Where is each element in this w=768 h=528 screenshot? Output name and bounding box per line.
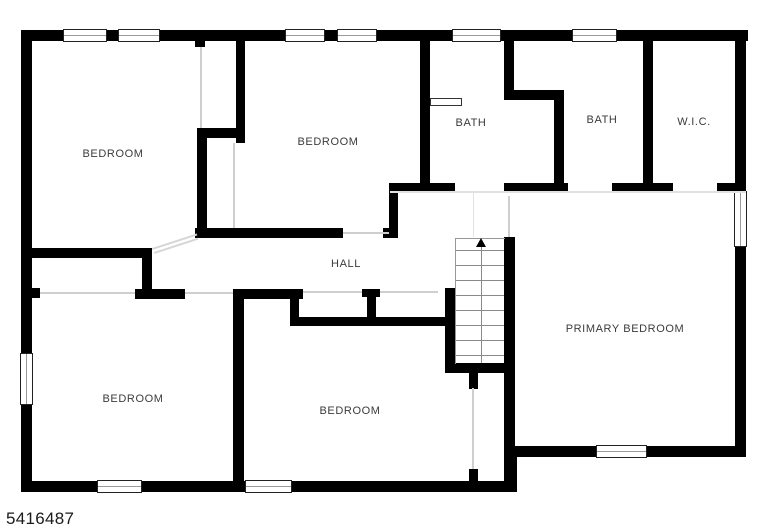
stairs-left-wall xyxy=(445,288,455,373)
closet-door-line xyxy=(233,143,235,228)
bath-shelf xyxy=(430,98,462,106)
stairs-bottom-wall xyxy=(445,363,512,373)
closet-door-line xyxy=(472,388,474,469)
bath-right-wall-lower xyxy=(554,90,564,192)
closet-door-line xyxy=(200,47,202,128)
room-label-bedroom-top-middle: BEDROOM xyxy=(297,136,358,148)
window xyxy=(452,29,501,42)
window xyxy=(337,29,377,42)
window xyxy=(734,191,747,247)
stairs-up-arrow-icon xyxy=(476,238,486,247)
outer-wall-left xyxy=(21,30,32,492)
bedroom4-closet-jamb xyxy=(469,469,478,482)
bedroom4-closet-jamb xyxy=(469,373,478,389)
door-opening-line xyxy=(508,196,510,237)
hall-closet-wall xyxy=(21,248,152,258)
room-label-bedroom-top-left: BEDROOM xyxy=(82,148,143,160)
bath-left-wall xyxy=(420,40,430,192)
window xyxy=(118,29,160,42)
room-label-bedroom-bottom-middle: BEDROOM xyxy=(319,405,380,417)
door-opening-line xyxy=(380,291,438,293)
stair-tread xyxy=(456,295,504,296)
bedrooms-bottom-wall xyxy=(195,228,343,238)
room-label-bath-left: BATH xyxy=(456,117,487,129)
door-opening-line xyxy=(473,192,474,237)
window xyxy=(572,29,617,42)
room-label-wic: W.I.C. xyxy=(677,116,711,128)
window xyxy=(63,29,107,42)
bath-wic-divider-wall xyxy=(643,40,653,192)
closet-wall-stub xyxy=(195,40,205,47)
window xyxy=(97,480,142,493)
door-opening-line xyxy=(185,292,233,294)
stair-tread xyxy=(456,340,504,341)
stair-tread xyxy=(456,310,504,311)
bath-right-wall-upper xyxy=(504,40,514,97)
stair-tread xyxy=(456,280,504,281)
room-label-primary-bedroom: PRIMARY BEDROOM xyxy=(566,323,685,335)
room-label-bath-right: BATH xyxy=(587,114,618,126)
hall-closet-back-wall xyxy=(290,317,455,326)
floorplan-id: 5416487 xyxy=(6,509,74,528)
stairs-right-wall xyxy=(504,237,515,492)
stairs xyxy=(455,238,505,364)
stair-tread xyxy=(456,355,504,356)
door-opening-line xyxy=(390,191,746,193)
window xyxy=(596,445,647,458)
window xyxy=(245,480,292,493)
hall-closet-wall xyxy=(142,248,152,290)
door-opening-line xyxy=(303,291,362,293)
closet-wall xyxy=(197,128,207,232)
door-opening-line xyxy=(343,232,389,234)
stair-tread xyxy=(456,250,504,251)
floorplan: BEDROOM BEDROOM BATH BATH W.I.C. HALL PR… xyxy=(0,0,768,528)
stair-tread xyxy=(456,265,504,266)
stair-tread xyxy=(456,325,504,326)
bedroom3-wall-stub xyxy=(21,288,40,298)
window xyxy=(285,29,325,42)
window xyxy=(20,353,33,405)
bedroom-divider-wall xyxy=(233,289,244,482)
room-label-hall: HALL xyxy=(331,258,361,270)
room-label-bedroom-bottom-left: BEDROOM xyxy=(102,393,163,405)
bedroom3-top-wall xyxy=(135,289,185,299)
door-opening-line xyxy=(40,292,135,294)
stair-direction-line xyxy=(481,246,482,363)
